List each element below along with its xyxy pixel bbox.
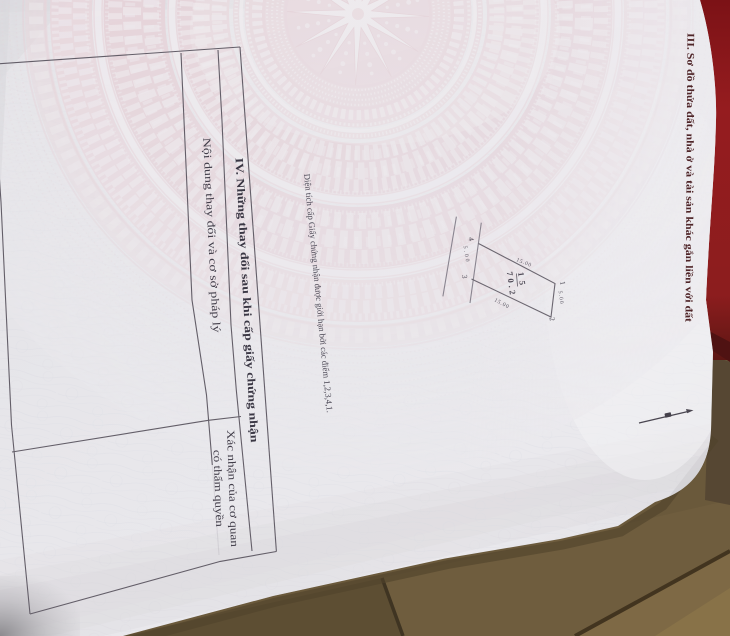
svg-text:III. Sơ đồ thửa đất, nhà ở và: III. Sơ đồ thửa đất, nhà ở và tài sản kh…	[682, 33, 695, 323]
